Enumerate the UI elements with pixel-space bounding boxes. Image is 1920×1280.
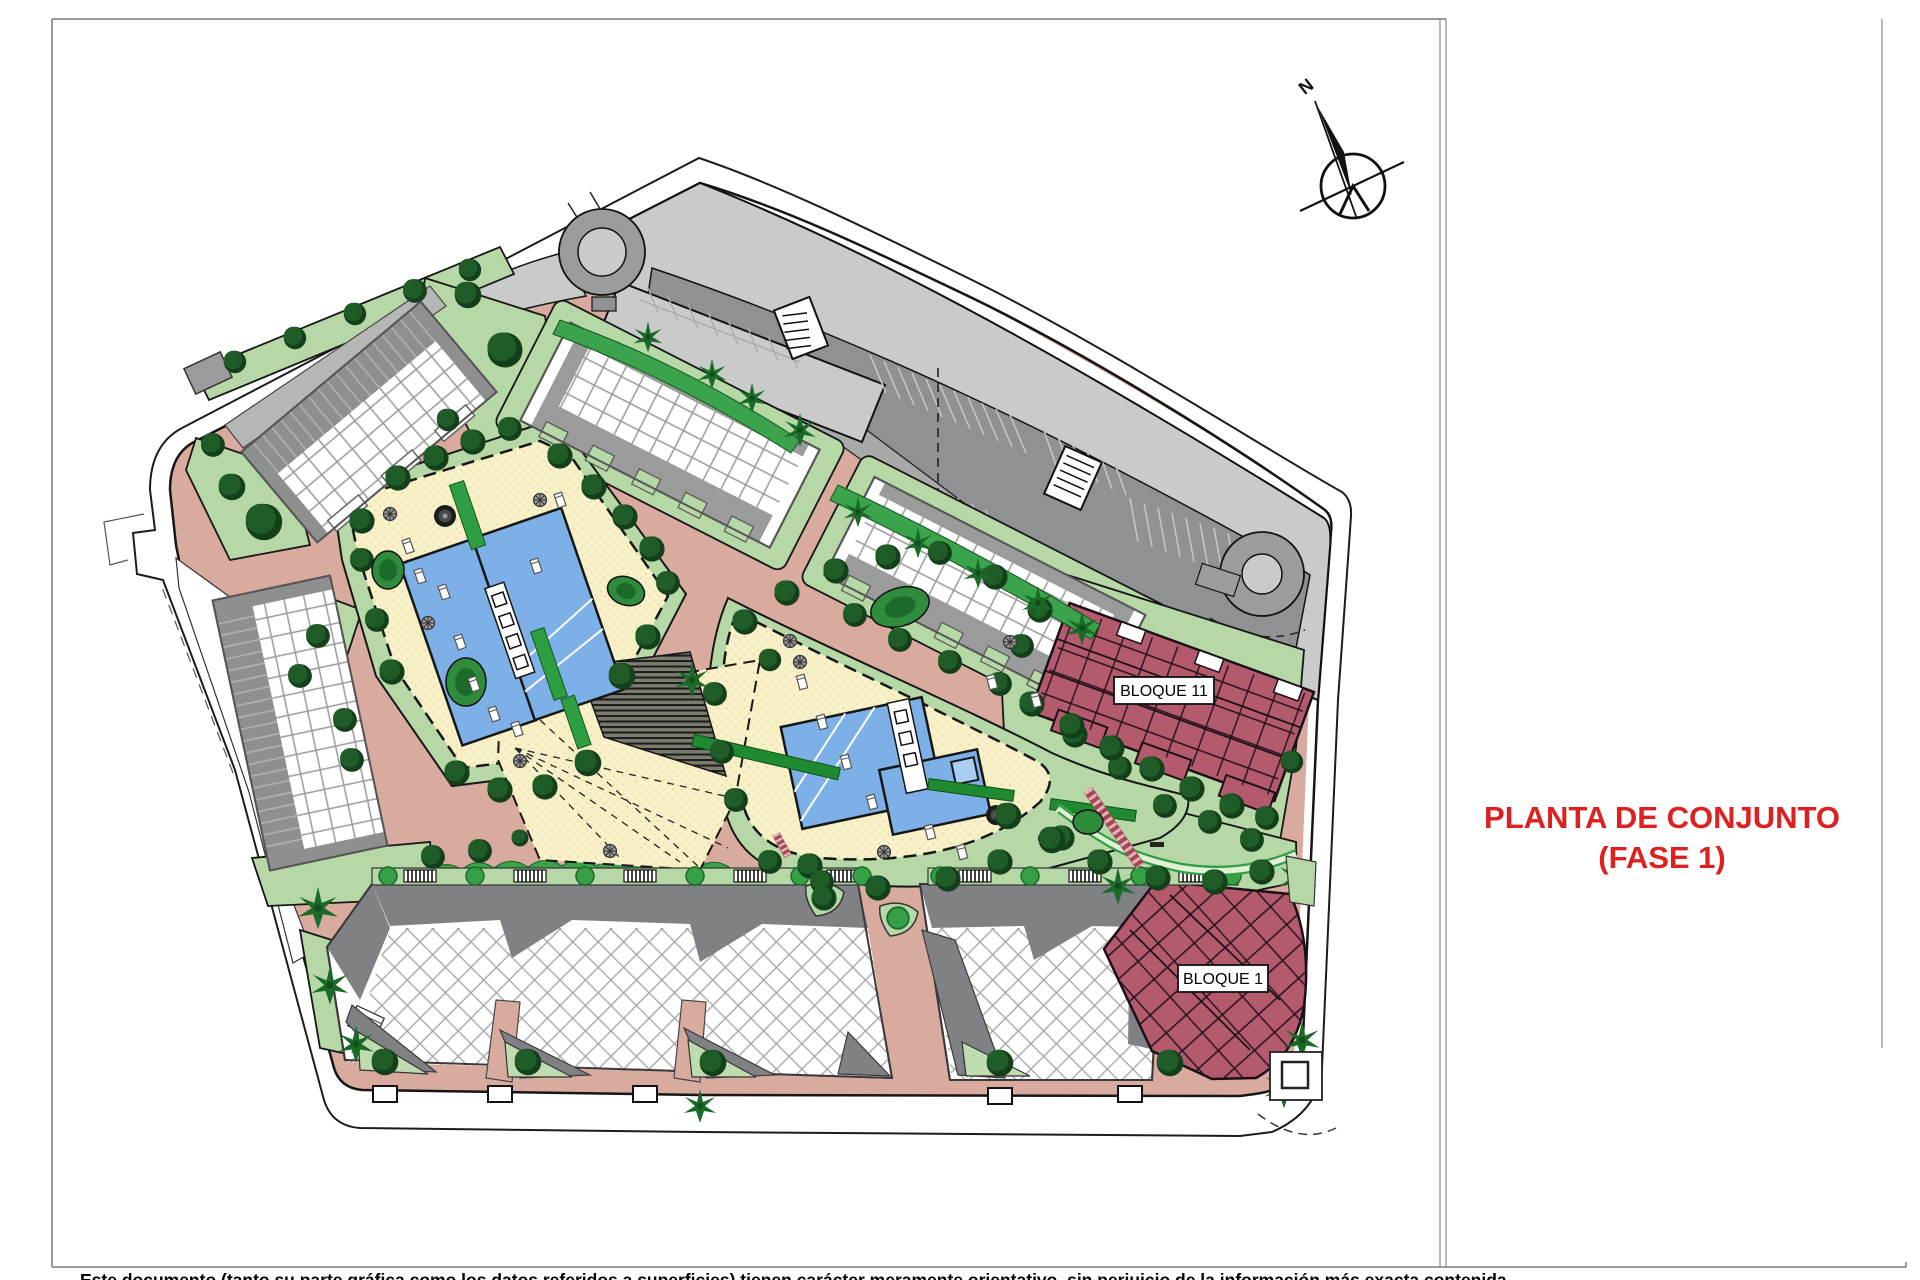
svg-text:Este documento (tanto su parte: Este documento (tanto su parte gráfica c… <box>80 1270 1507 1280</box>
svg-text:BLOQUE 1: BLOQUE 1 <box>1183 971 1263 988</box>
svg-text:BLOQUE 11: BLOQUE 11 <box>1120 683 1208 700</box>
svg-text:(FASE 1): (FASE 1) <box>1598 840 1725 875</box>
svg-text:PLANTA DE CONJUNTO: PLANTA DE CONJUNTO <box>1484 800 1840 835</box>
